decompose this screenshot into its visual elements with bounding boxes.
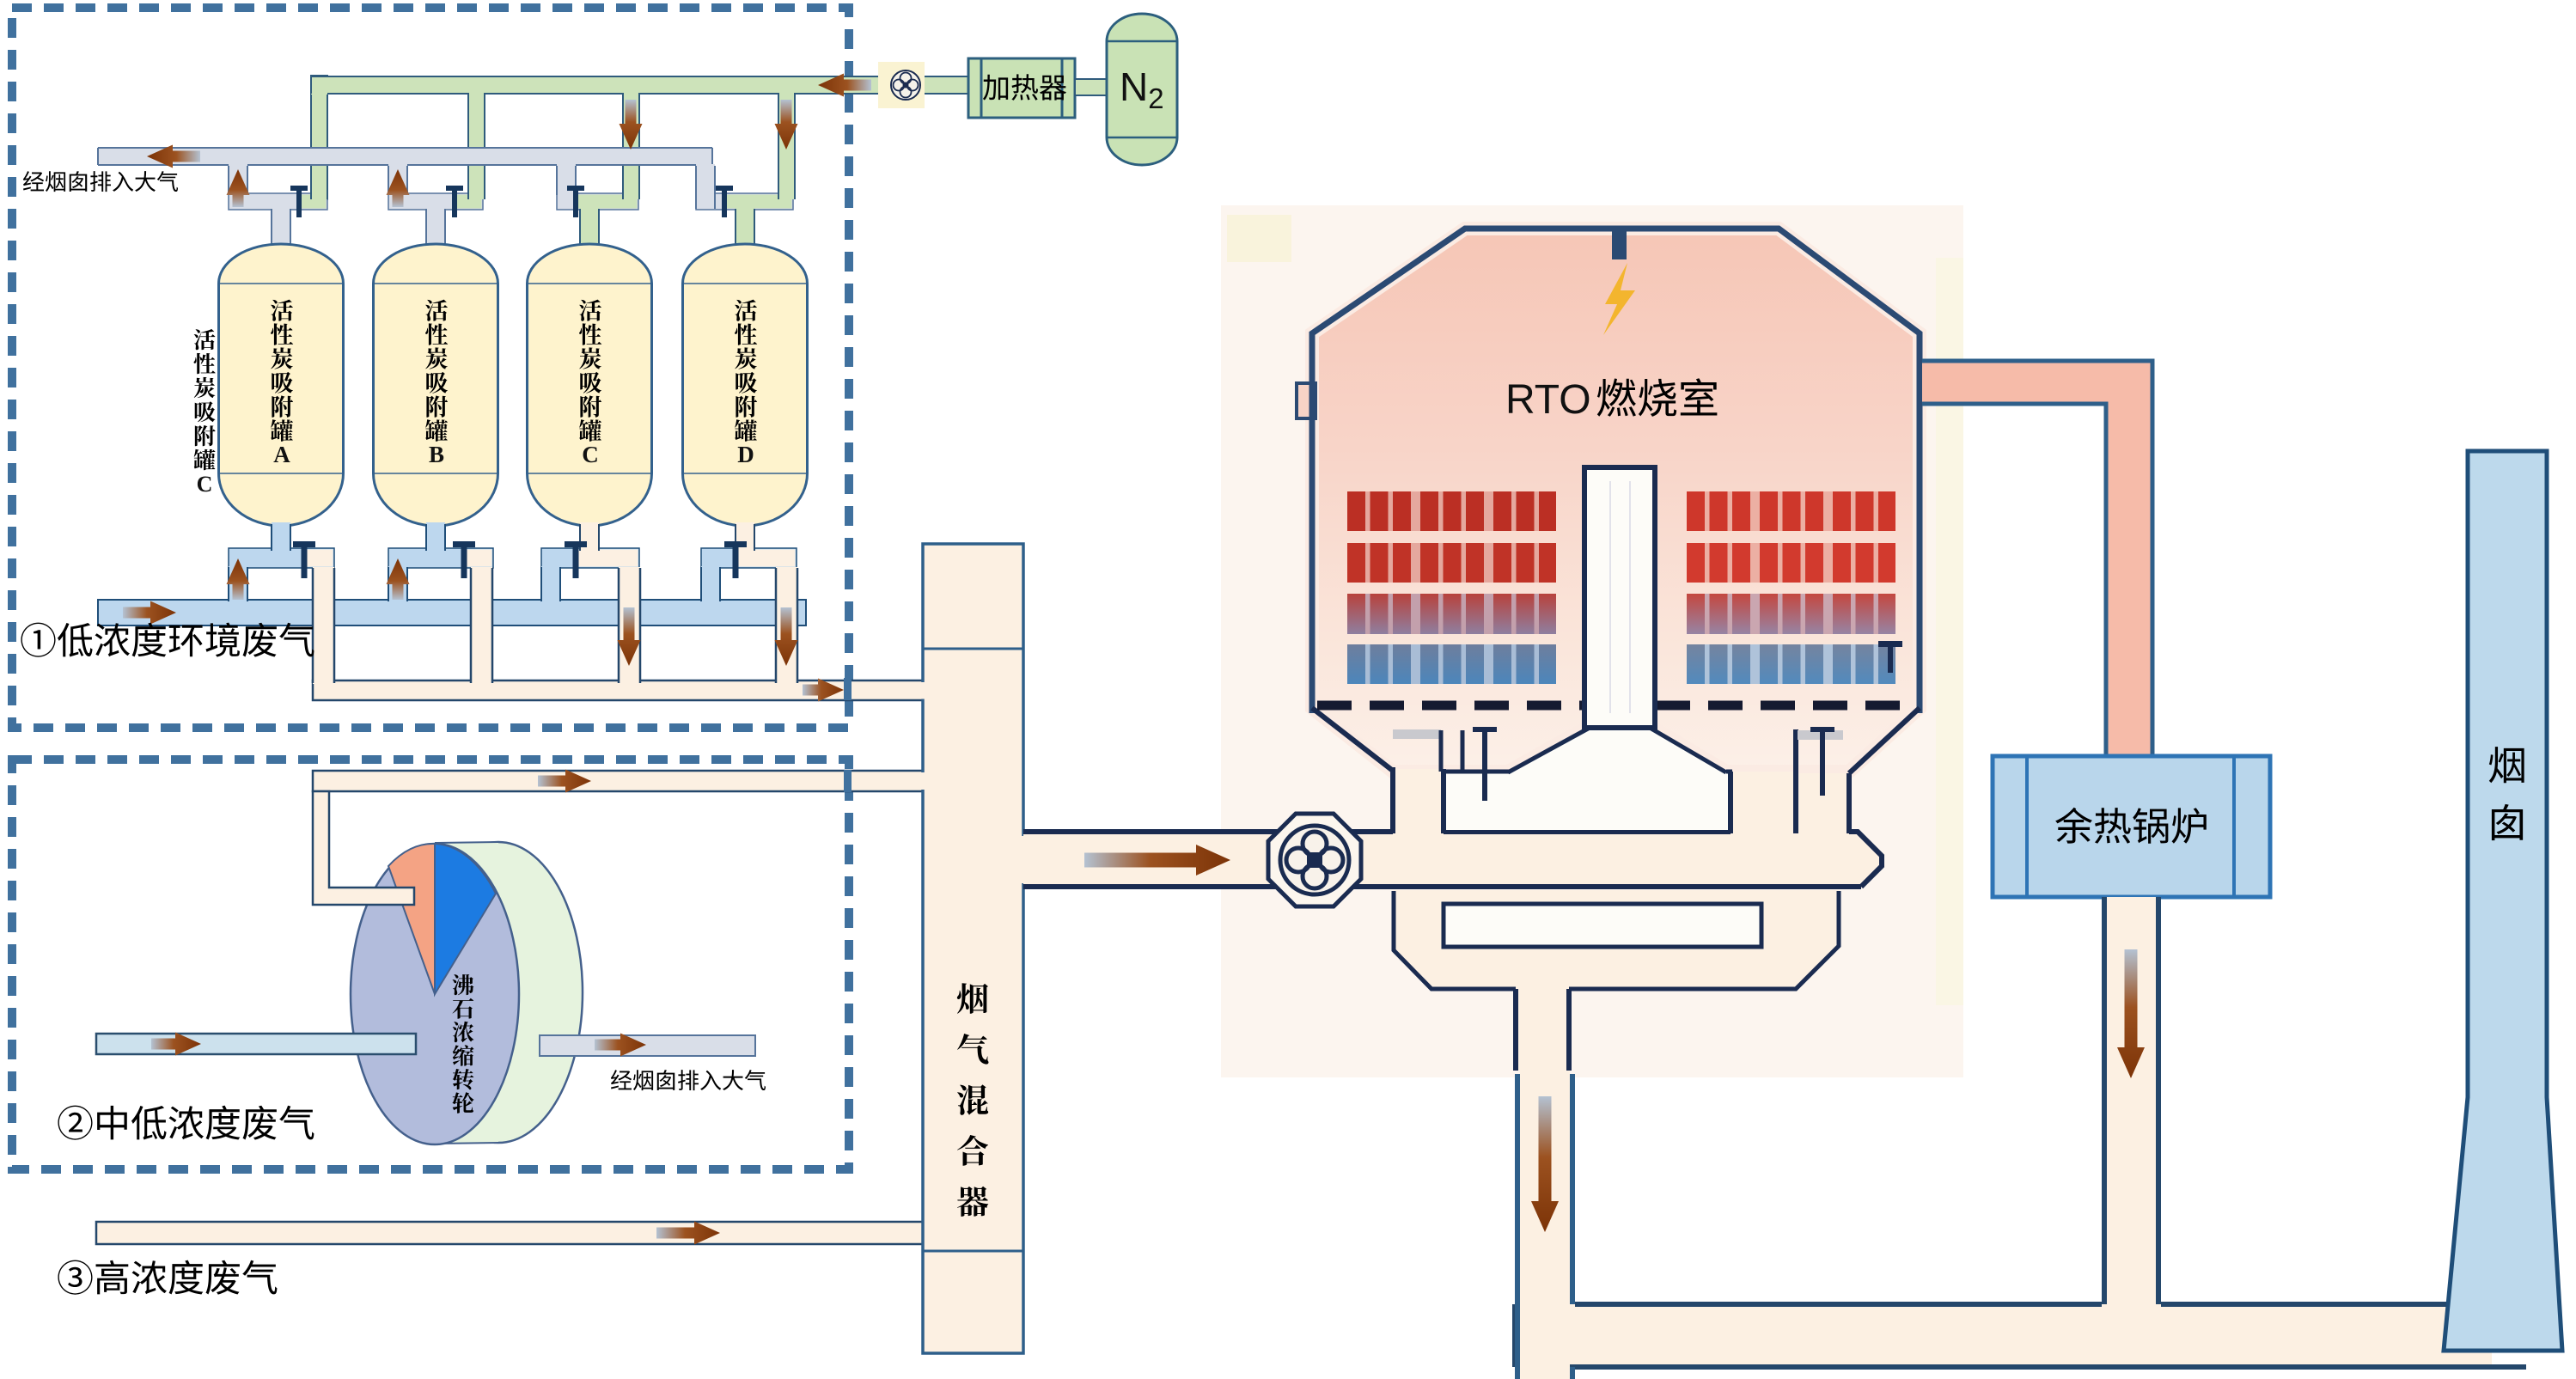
- svg-text:B: B: [429, 442, 444, 467]
- svg-text:C: C: [197, 472, 213, 497]
- svg-text:C: C: [582, 442, 599, 467]
- svg-text:D: D: [737, 442, 754, 467]
- svg-text:RTO: RTO: [1505, 377, 1591, 423]
- svg-text:A: A: [273, 442, 290, 467]
